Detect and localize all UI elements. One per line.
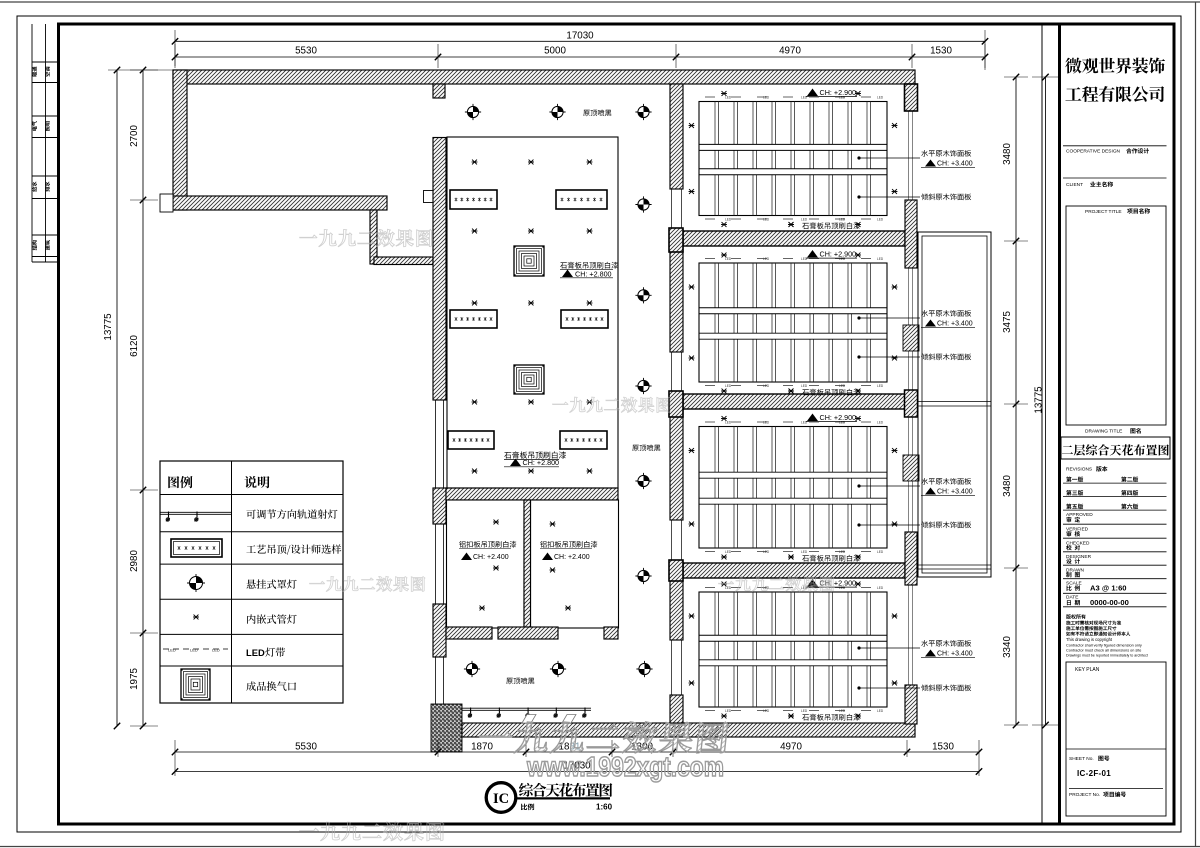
- svg-text:4970: 4970: [780, 742, 802, 753]
- svg-text:LED: LED: [877, 550, 884, 554]
- svg-text:LED: LED: [877, 586, 884, 590]
- svg-text:13775: 13775: [1034, 386, 1045, 414]
- svg-text:LED: LED: [763, 218, 770, 222]
- svg-text:13775: 13775: [103, 313, 114, 341]
- svg-text:CH: +2.900: CH: +2.900: [820, 413, 857, 422]
- svg-text:A3 @ 1:60: A3 @ 1:60: [1090, 584, 1127, 593]
- svg-text:SHEET No.: SHEET No.: [1069, 756, 1094, 762]
- svg-text:APPROVED: APPROVED: [1066, 512, 1093, 518]
- svg-text:COOPERATIVE DESIGN: COOPERATIVE DESIGN: [1066, 149, 1121, 155]
- svg-text:1:60: 1:60: [596, 803, 613, 812]
- svg-text:2700: 2700: [129, 125, 140, 147]
- svg-text:CH: +2.900: CH: +2.900: [820, 88, 857, 97]
- svg-text:LED: LED: [168, 648, 176, 653]
- svg-text:LED: LED: [801, 218, 808, 222]
- svg-text:IC-2F-01: IC-2F-01: [1077, 769, 1111, 778]
- svg-text:1975: 1975: [129, 668, 140, 690]
- svg-text:LED: LED: [763, 550, 770, 554]
- svg-text:DRAWING TITLE: DRAWING TITLE: [1085, 429, 1122, 435]
- svg-text:LED: LED: [725, 218, 732, 222]
- svg-text:CH: +2.900: CH: +2.900: [820, 579, 857, 588]
- svg-text:LED: LED: [877, 218, 884, 222]
- svg-text:IC: IC: [493, 791, 509, 807]
- svg-text:6120: 6120: [129, 335, 140, 357]
- svg-text:LED: LED: [801, 550, 808, 554]
- svg-text:LED: LED: [190, 648, 198, 653]
- svg-text:LED: LED: [801, 257, 808, 261]
- svg-text:CH: +3.400: CH: +3.400: [937, 489, 973, 496]
- svg-text:PROJECT TITLE: PROJECT TITLE: [1085, 209, 1122, 215]
- svg-text:LED: LED: [725, 384, 732, 388]
- svg-text:CH: +3.400: CH: +3.400: [937, 321, 973, 328]
- svg-text:CHECKED: CHECKED: [1066, 541, 1090, 547]
- svg-text:LED: LED: [877, 421, 884, 425]
- svg-text:LED: LED: [877, 384, 884, 388]
- svg-text:5530: 5530: [295, 46, 317, 57]
- svg-text:3475: 3475: [1002, 311, 1013, 333]
- svg-text:LED: LED: [801, 384, 808, 388]
- svg-text:3480: 3480: [1002, 143, 1013, 165]
- svg-text:LED: LED: [763, 421, 770, 425]
- svg-text:17030: 17030: [566, 31, 594, 42]
- svg-text:www.1992xgt.com: www.1992xgt.com: [526, 751, 724, 782]
- svg-text:5000: 5000: [544, 46, 566, 57]
- svg-text:CH: +2.400: CH: +2.400: [473, 554, 509, 561]
- svg-text:LED: LED: [839, 218, 846, 222]
- svg-text:LED: LED: [763, 709, 770, 713]
- svg-text:5530: 5530: [295, 742, 317, 753]
- svg-text:0000-00-00: 0000-00-00: [1090, 598, 1129, 607]
- svg-text:1530: 1530: [932, 742, 954, 753]
- svg-text:REVISIONS: REVISIONS: [1066, 467, 1092, 473]
- svg-text:LED: LED: [877, 709, 884, 713]
- svg-text:Drawings must be reported imme: Drawings must be reported immediately to…: [1066, 654, 1148, 658]
- svg-text:CH: +2.400: CH: +2.400: [554, 554, 590, 561]
- svg-text:LED: LED: [877, 96, 884, 100]
- svg-text:LED: LED: [801, 421, 808, 425]
- svg-text:CH: +3.400: CH: +3.400: [937, 651, 973, 658]
- svg-text:LED: LED: [725, 550, 732, 554]
- svg-text:This drawing is copyright: This drawing is copyright: [1066, 637, 1113, 642]
- svg-text:PROJECT No.: PROJECT No.: [1069, 792, 1100, 798]
- svg-text:Contractor must check all dime: Contractor must check all dimensions on …: [1066, 649, 1141, 653]
- svg-text:LED: LED: [839, 384, 846, 388]
- svg-text:LED: LED: [839, 709, 846, 713]
- svg-text:LED: LED: [763, 257, 770, 261]
- svg-text:LED: LED: [763, 384, 770, 388]
- svg-text:LED: LED: [839, 550, 846, 554]
- svg-text:LED: LED: [212, 648, 220, 653]
- svg-text:CLIENT: CLIENT: [1066, 182, 1083, 188]
- svg-text:CH: +2.800: CH: +2.800: [575, 270, 612, 279]
- svg-text:LED: LED: [877, 257, 884, 261]
- svg-text:LED: LED: [725, 709, 732, 713]
- svg-text:LED: LED: [801, 709, 808, 713]
- svg-text:2980: 2980: [129, 550, 140, 572]
- svg-text:CH: +2.900: CH: +2.900: [820, 250, 857, 259]
- svg-text:3480: 3480: [1002, 475, 1013, 497]
- svg-text:LED: LED: [801, 96, 808, 100]
- svg-text:4970: 4970: [779, 46, 801, 57]
- svg-text:LED: LED: [246, 647, 265, 658]
- svg-text:DATE: DATE: [1066, 595, 1078, 601]
- svg-text:1870: 1870: [471, 742, 493, 753]
- svg-text:KEY PLAN: KEY PLAN: [1075, 667, 1100, 673]
- svg-text:CH: +3.400: CH: +3.400: [937, 161, 973, 168]
- svg-text:Contractor shall verify figure: Contractor shall verify figured dimensio…: [1066, 644, 1142, 648]
- svg-text:3340: 3340: [1002, 636, 1013, 658]
- svg-text:CH: +2.800: CH: +2.800: [523, 458, 560, 467]
- svg-text:1530: 1530: [930, 46, 952, 57]
- svg-text:LED: LED: [763, 96, 770, 100]
